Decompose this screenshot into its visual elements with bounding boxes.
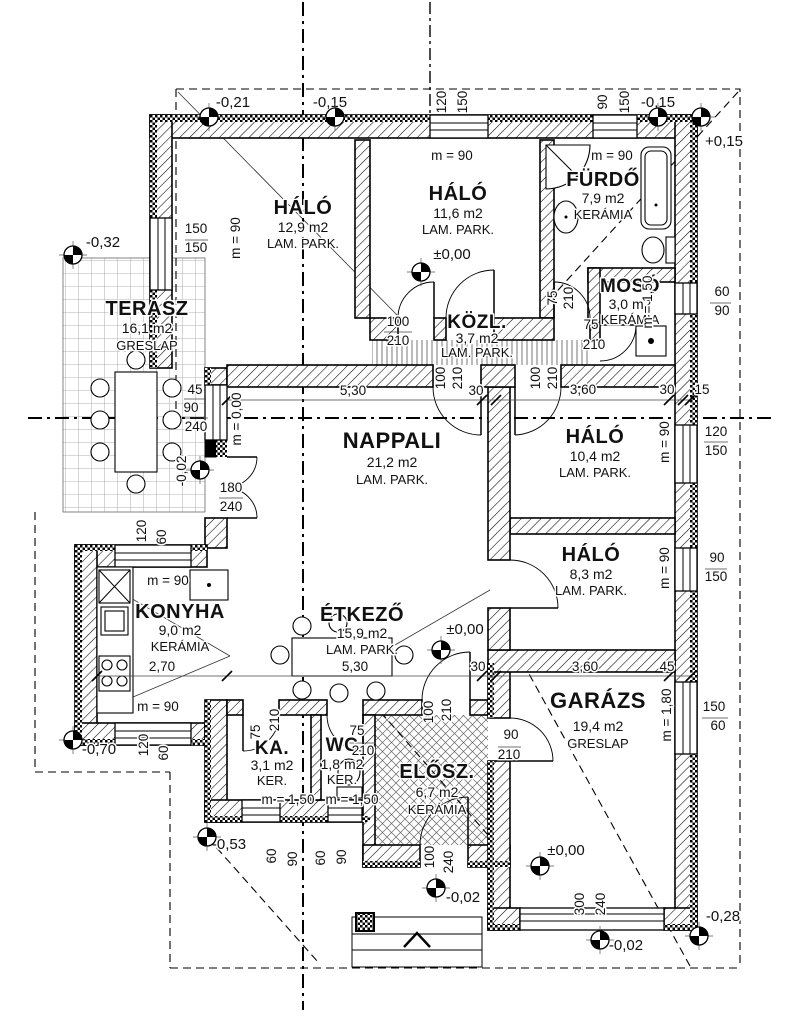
door [398,282,434,318]
dimension-label: 15 [694,382,709,397]
dimension-label: 240 [220,499,243,514]
dimension-label: 150 [455,91,470,114]
room-name: HÁLÓ [562,542,621,566]
dimension-label: 45 [659,659,674,674]
room-floor: GRESLAP [116,338,177,353]
dimension-label: 90 [714,303,729,318]
dimension-label: ±0,00 [547,842,584,859]
room-name: ÉTKEZŐ [320,603,404,626]
dimension-label: m = 1,50 [640,276,655,329]
dimension-label: m = 90 [431,148,473,163]
door [600,325,636,361]
room-name: KONYHA [135,601,225,623]
room-name: GARÁZS [550,688,646,713]
dimension-label: 90 [709,550,724,565]
dimension-label: -0,53 [212,836,246,853]
dimension-label: 210 [450,367,465,390]
dimension-label: 60 [710,718,725,733]
dimension-label: 75 [248,724,263,739]
dimension-label: 3,60 [570,382,596,397]
door [515,387,561,435]
dimension-label: 75 [583,317,598,332]
window [593,115,637,138]
dimension-label: 100 [387,314,410,329]
room-area: 12,9 m2 [278,219,329,235]
dimension-label: m = 1,50 [262,792,315,807]
dimension-label: -0,02 [174,456,189,487]
dimension-label: 5,30 [342,659,368,674]
window [115,545,191,567]
room-area: 3,1 m2 [251,757,294,773]
dimension-label: m = 1,50 [326,792,379,807]
dimension-label: 75 [545,290,560,305]
dimension-label: -0,28 [706,908,740,925]
room-area: 10,4 m2 [570,448,621,464]
room-label-7: HÁLÓ10,4 m2LAM. PARK. [559,424,631,480]
room-label-1: HÁLÓ12,9 m2LAM. PARK. [267,195,339,251]
dimension-label: 150 [705,443,728,458]
dimension-label: 120 [705,424,728,439]
window [205,385,227,440]
dimension-label: 240 [185,419,208,434]
dimension-label: m = 90 [147,573,189,588]
level-marker-icon [427,636,455,664]
room-area: 11,6 m2 [433,205,483,221]
room-floor: LAM. PARK. [441,345,513,360]
dimension-label: 150 [705,569,728,584]
dimension-label: 90 [334,849,349,864]
window [675,682,697,754]
window [430,115,488,138]
bathtub [641,147,671,229]
dimension-label: 90 [503,727,518,742]
dimension-label: 100 [422,846,437,869]
dimension-label: 240 [593,893,608,916]
window [675,548,697,591]
dimension-label: m = 90 [591,148,633,163]
dimension-label: 90 [285,851,300,866]
dimension-label: 5,30 [340,383,366,398]
room-floor: LAM. PARK. [559,465,631,480]
room-floor: LAM. PARK. [422,222,494,237]
dimension-label: -0,70 [82,741,116,758]
dimension-label: 210 [387,333,410,348]
dimension-label: 240 [441,851,456,874]
dimension-label: 30 [470,659,485,674]
washing-machine [636,326,666,356]
dimension-label: 210 [561,287,576,310]
dimension-label: m = 90 [657,547,672,589]
dimension-label: 60 [714,284,729,299]
window [675,425,697,483]
dimension-label: 3,60 [572,659,598,674]
dimension-label: m = 90 [137,699,179,714]
room-label-3: FÜRDŐ7,9 m2KERÁMIA [566,168,640,222]
dimension-label: 150 [185,240,208,255]
dimension-label: 210 [267,709,282,732]
dimension-label: -0,02 [446,889,480,906]
toilet-bathroom [642,237,675,263]
dimension-label: 210 [545,367,560,390]
dimension-label: ±0,00 [446,621,483,638]
dimension-label: ±0,00 [433,246,470,263]
dimension-label: 60 [156,745,171,760]
room-floor: KER. [257,773,287,788]
window [675,283,697,314]
door [510,560,558,608]
dimension-label: 90 [183,400,198,415]
room-name: FÜRDŐ [566,168,640,191]
dimension-label: 120 [136,734,151,757]
dimension-label: 100 [433,367,448,390]
dimension-label: 120 [434,91,449,114]
room-floor: KERÁMIA [574,207,633,222]
room-label-6: NAPPALI21,2 m2LAM. PARK. [343,428,441,487]
room-name: HÁLÓ [274,195,333,219]
room-floor: LAM. PARK. [555,583,627,598]
door [446,270,494,318]
porch-column [356,913,374,931]
dimension-label: 60 [313,850,328,865]
dimension-label: 210 [498,747,521,762]
room-floor: LAM. PARK. [326,642,398,657]
room-area: 3,7 m2 [456,330,499,346]
room-label-2: HÁLÓ11,6 m2LAM. PARK. [422,181,494,237]
room-area: 16,1 m2 [122,320,173,336]
room-area: 19,4 m2 [573,718,624,734]
room-area: 7,9 m2 [582,190,625,206]
garage-door [520,908,664,930]
dimension-label: m = 90 [228,217,243,259]
dimension-label: 2,70 [149,659,175,674]
room-name: TERASZ [106,298,189,320]
room-floor: KER. [327,772,357,787]
dimension-label: 100 [528,367,543,390]
dimension-label: 60 [154,529,169,544]
room-label-12: KA.3,1 m2KER. [251,738,294,788]
window [150,218,172,290]
room-floor: GRESLAP [567,736,628,751]
dimension-label: 120 [134,520,149,543]
room-area: 9,0 m2 [159,622,202,638]
room-floor: LAM. PARK. [267,236,339,251]
dimension-label: 210 [439,699,454,722]
room-area: 21,2 m2 [367,454,418,470]
room-area: 1,8 m2 [321,756,364,772]
dimension-label: 30 [468,383,483,398]
dimension-label: 180 [220,480,243,495]
dimension-label: 210 [583,337,606,352]
entry-steps [352,913,482,967]
room-name: KA. [255,738,289,759]
dimension-label: +0,15 [705,133,743,150]
room-area: 15,9 m2 [337,625,388,641]
dimension-label: 60 [264,848,279,863]
dimension-label: 150 [185,221,208,236]
dimension-label: 150 [617,91,632,114]
room-name: HÁLÓ [429,181,488,205]
dimension-label: 45 [187,382,202,397]
floor-plan: TERASZ16,1 m2GRESLAPHÁLÓ12,9 m2LAM. PARK… [0,0,798,1024]
dimension-label: 75 [349,723,364,738]
room-area: 8,3 m2 [570,566,613,582]
room-name: HÁLÓ [566,424,625,448]
dimension-label: m = 90 [657,421,672,463]
window [115,723,191,745]
room-floor: LAM. PARK. [356,472,428,487]
dimension-label: -0,32 [86,234,120,251]
room-label-11: GARÁZS19,4 m2GRESLAP [550,688,646,751]
dimension-label: 30 [659,382,674,397]
room-label-8: HÁLÓ8,3 m2LAM. PARK. [555,542,627,598]
dimension-label: 150 [703,699,726,714]
room-floor: KERÁMIA [151,639,210,654]
room-area: 6,7 m2 [416,784,459,800]
room-label-9: KONYHA9,0 m2KERÁMIA [135,601,225,654]
dimension-label: 90 [595,94,610,109]
room-name: ELŐSZ. [399,760,474,783]
dimension-label: 300 [572,893,587,916]
dimension-label: 210 [352,743,375,758]
dimension-label: 100 [421,701,436,724]
room-name: NAPPALI [343,428,441,453]
dimension-label: m = 1,80 [659,689,674,742]
room-floor: KERÁMIA [408,802,467,817]
dimension-label: -0,15 [313,94,347,111]
dimension-label: m = 0,00 [229,393,244,446]
dimension-label: -0,02 [609,937,643,954]
dimension-label: -0,21 [216,94,250,111]
